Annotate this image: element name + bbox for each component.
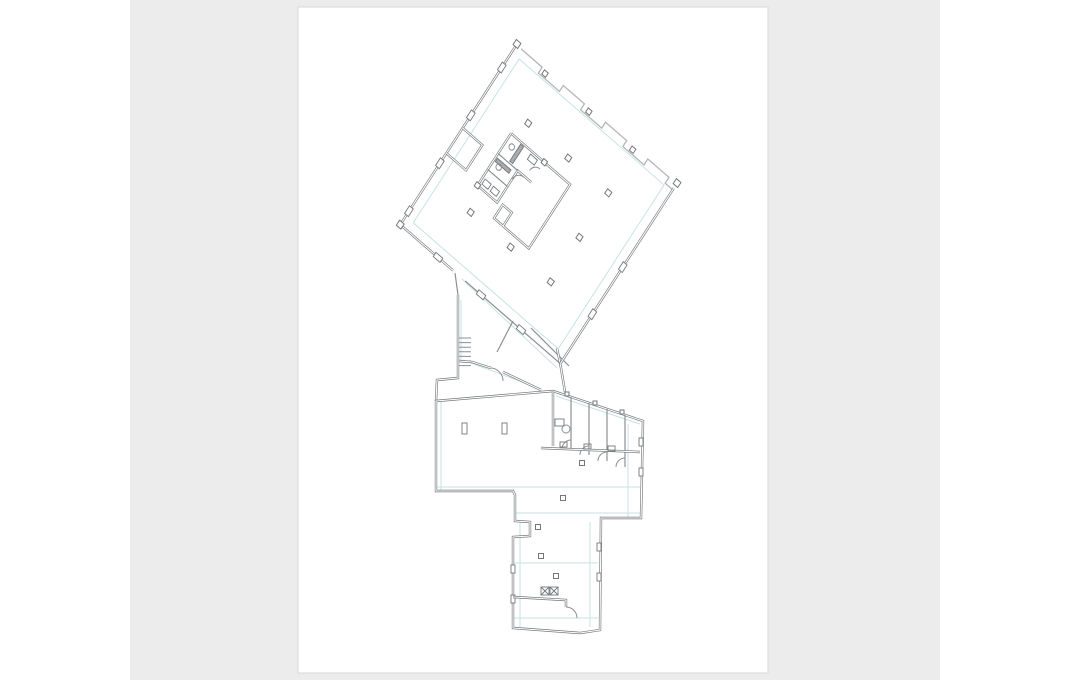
column-marker bbox=[639, 438, 643, 446]
column-marker bbox=[502, 423, 507, 434]
column-marker bbox=[597, 573, 601, 581]
column-marker bbox=[580, 461, 585, 466]
column-marker bbox=[539, 554, 544, 559]
drawing-viewport[interactable] bbox=[0, 0, 1070, 680]
column-marker bbox=[462, 423, 467, 434]
column-marker bbox=[597, 543, 601, 551]
column-marker bbox=[639, 468, 643, 476]
column-marker bbox=[554, 574, 559, 579]
column-marker bbox=[511, 565, 515, 573]
floor-plan-svg bbox=[0, 0, 1070, 680]
column-marker bbox=[565, 392, 569, 396]
column-marker bbox=[593, 401, 597, 405]
column-marker bbox=[620, 410, 624, 414]
column-marker bbox=[536, 525, 541, 530]
column-marker bbox=[561, 496, 566, 501]
